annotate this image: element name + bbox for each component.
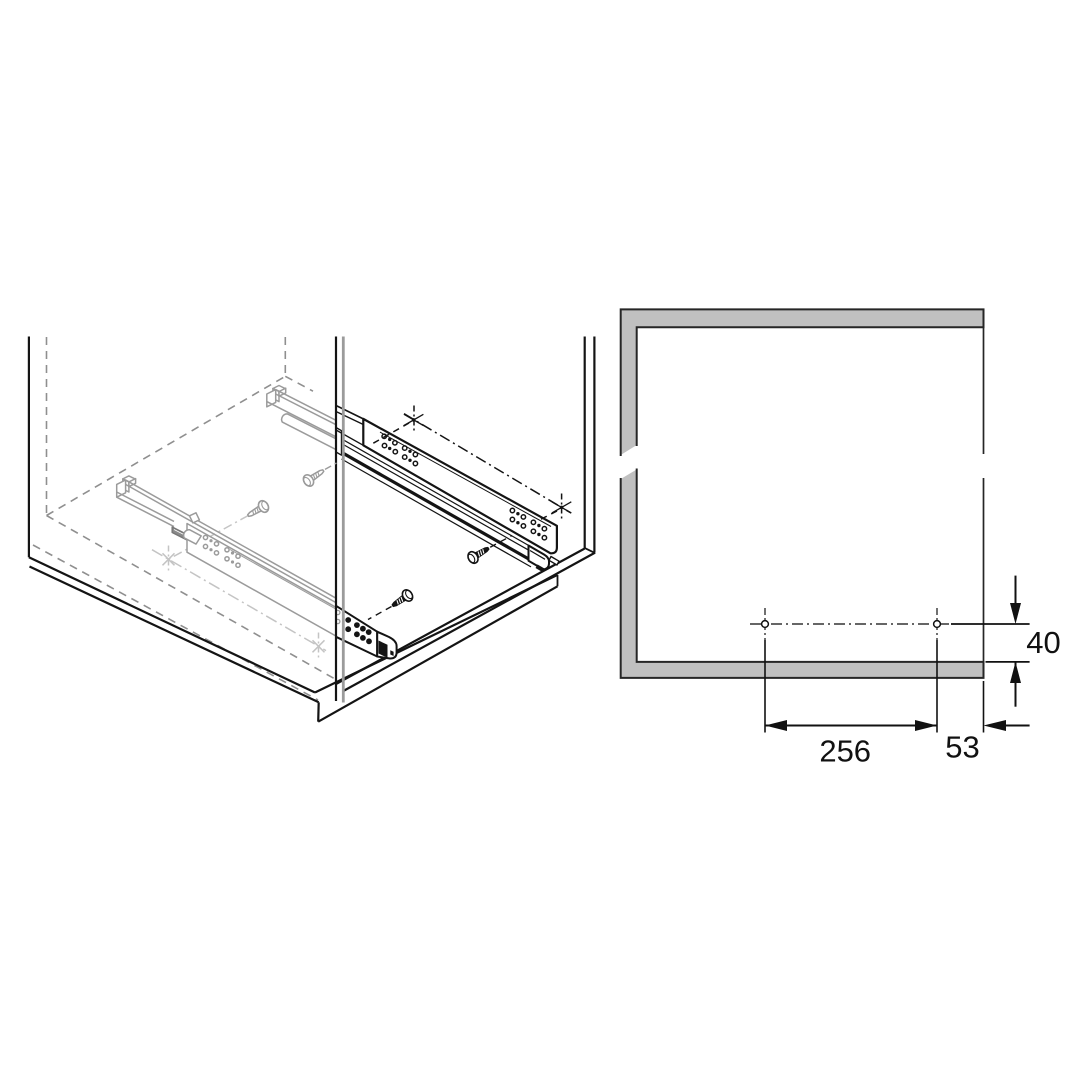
svg-text:53: 53 xyxy=(945,730,979,765)
svg-text:256: 256 xyxy=(819,734,871,769)
svg-text:40: 40 xyxy=(1026,625,1060,660)
